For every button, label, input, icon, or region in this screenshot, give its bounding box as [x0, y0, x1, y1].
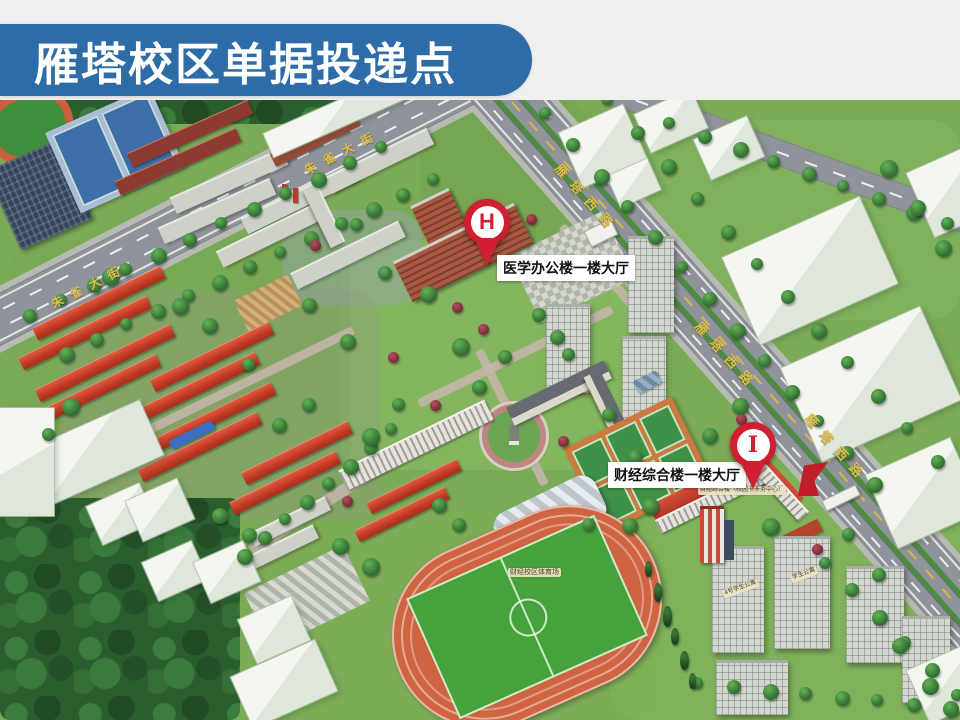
tree: [242, 358, 255, 371]
tree: [671, 628, 679, 645]
tree: [721, 225, 736, 240]
tree: [151, 304, 166, 319]
finance-tower-glass: [724, 520, 734, 560]
tree: [366, 202, 382, 218]
tree: [274, 246, 286, 258]
pin-tail: [474, 238, 500, 266]
tree: [302, 398, 316, 412]
tree: [183, 233, 197, 247]
pin-tail: [740, 461, 766, 489]
tree: [732, 398, 749, 415]
tree: [396, 188, 410, 202]
tree: [663, 117, 675, 129]
tree: [532, 308, 546, 322]
tree: [42, 428, 55, 441]
tree: [812, 544, 823, 555]
tree: [689, 673, 696, 689]
tree: [661, 159, 677, 175]
tree: [931, 455, 945, 469]
tree: [872, 610, 888, 626]
tree: [767, 155, 780, 168]
tree: [941, 217, 954, 230]
campus-map: 朱雀大街 朱雀大街 雁塔西路 雁塔西路 雁塔西路 财经校区体育场 财经综合楼（校…: [0, 100, 960, 720]
tree: [594, 169, 610, 185]
tree: [243, 260, 257, 274]
tree: [59, 347, 75, 363]
finance-tower: [700, 506, 724, 563]
tree: [562, 348, 575, 361]
campus-tower: [628, 236, 674, 333]
tree: [702, 428, 718, 444]
tree: [427, 173, 439, 185]
marker-i: I: [730, 422, 776, 489]
tree: [172, 298, 189, 315]
tree: [951, 689, 960, 701]
page-title: 雁塔校区单据投递点: [34, 28, 457, 93]
ghost-building: [0, 408, 54, 516]
tree: [237, 549, 253, 565]
tree: [663, 606, 673, 627]
tree: [922, 678, 939, 695]
tree: [802, 167, 817, 182]
tree: [212, 275, 228, 291]
tree: [943, 701, 959, 717]
tree: [202, 318, 218, 334]
tree: [247, 202, 262, 217]
tree: [811, 323, 827, 339]
tree: [703, 292, 717, 306]
tree: [432, 498, 447, 513]
tree: [335, 217, 348, 230]
tree: [212, 508, 228, 524]
tree: [550, 330, 565, 345]
tree: [837, 180, 849, 192]
tree: [785, 385, 800, 400]
tree: [631, 126, 645, 140]
tree: [378, 266, 392, 280]
tree: [310, 240, 321, 251]
tree: [925, 663, 940, 678]
marker-h-label: 医学办公楼一楼大厅: [497, 255, 635, 281]
tree: [388, 352, 399, 363]
gate-pillar: [293, 188, 298, 203]
tree: [420, 286, 437, 303]
tree: [350, 218, 363, 231]
tree: [526, 214, 537, 225]
tree: [302, 298, 317, 313]
tree: [362, 428, 380, 446]
tree: [835, 691, 850, 706]
tree: [452, 302, 463, 313]
tree: [90, 333, 104, 347]
tree: [478, 324, 489, 335]
tree: [867, 477, 883, 493]
tree: [872, 192, 886, 206]
tree: [901, 422, 913, 434]
tree: [621, 200, 634, 213]
tree: [452, 518, 466, 532]
marker-h-letter: H: [471, 206, 504, 239]
tree: [819, 557, 831, 569]
tree: [910, 200, 926, 216]
tree: [680, 651, 689, 671]
marker-h: H: [464, 199, 510, 266]
tree: [539, 107, 551, 119]
tree: [392, 398, 405, 411]
tree: [602, 408, 616, 422]
tree: [340, 334, 356, 350]
tree: [880, 160, 898, 178]
tree: [62, 398, 80, 416]
tree: [322, 477, 335, 490]
tree: [472, 380, 487, 395]
tree: [907, 698, 921, 712]
tree: [691, 192, 704, 205]
tree: [385, 423, 397, 435]
title-banner: 雁塔校区单据投递点: [0, 24, 532, 96]
tree: [763, 684, 779, 700]
tree: [698, 130, 712, 144]
tree: [935, 240, 952, 257]
statue: [509, 425, 519, 445]
tree: [279, 187, 292, 200]
tree: [733, 142, 749, 158]
tree: [332, 538, 349, 555]
tree: [642, 498, 659, 515]
tree: [645, 561, 652, 577]
tree: [654, 583, 662, 601]
tree: [676, 261, 688, 273]
tree: [582, 518, 595, 531]
tree: [342, 496, 353, 507]
tree: [23, 309, 37, 323]
tree: [272, 418, 287, 433]
tree: [430, 400, 441, 411]
tree: [751, 258, 763, 270]
tree: [558, 436, 569, 447]
marker-i-letter: I: [737, 429, 770, 462]
tree: [892, 638, 908, 654]
tree: [242, 528, 257, 543]
tree: [151, 248, 167, 264]
tree: [758, 354, 771, 367]
tree: [872, 568, 886, 582]
marker-i-label: 财经综合楼一楼大厅: [608, 462, 746, 488]
tree: [362, 558, 380, 576]
map-label: 财经校区体育场: [508, 568, 561, 577]
tree: [452, 338, 470, 356]
tree: [622, 518, 638, 534]
tree: [498, 350, 512, 364]
tree: [343, 459, 359, 475]
tree: [842, 528, 855, 541]
tree: [762, 518, 780, 536]
slide: 雁塔校区单据投递点: [0, 0, 960, 720]
